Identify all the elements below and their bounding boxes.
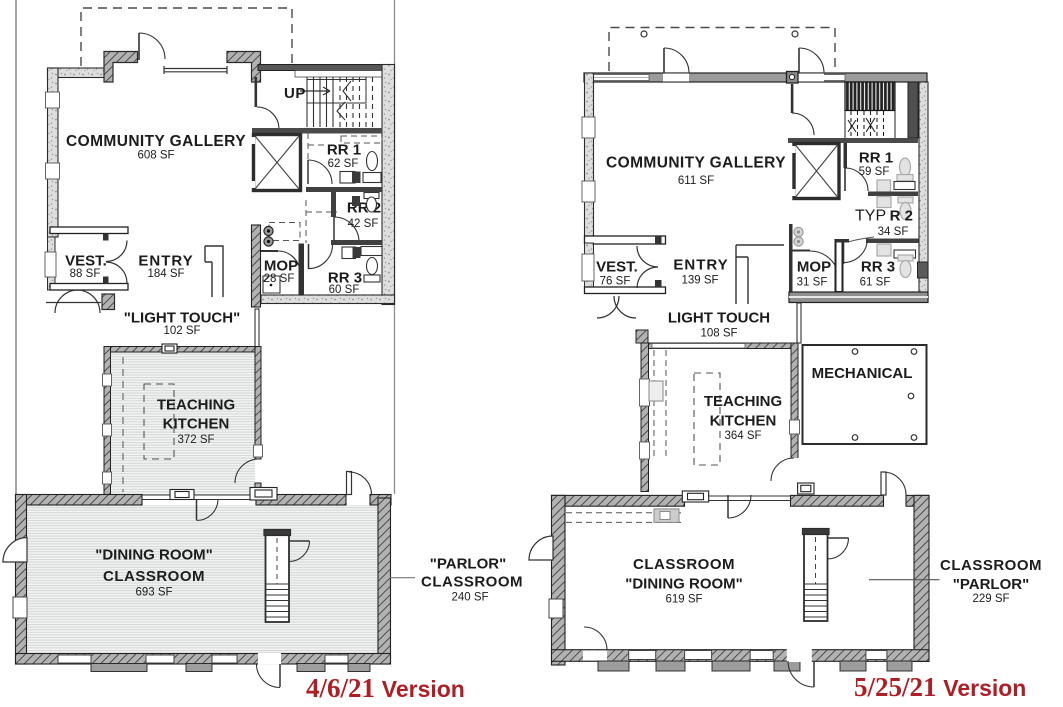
svg-text:CLASSROOM: CLASSROOM — [633, 556, 735, 573]
svg-text:608 SF: 608 SF — [137, 150, 174, 162]
svg-text:693 SF: 693 SF — [135, 587, 172, 599]
svg-text:102 SF: 102 SF — [163, 325, 200, 337]
svg-text:88 SF: 88 SF — [70, 268, 101, 280]
svg-text:COMMUNITY GALLERY: COMMUNITY GALLERY — [66, 133, 246, 150]
svg-text:VEST.: VEST. — [65, 253, 107, 270]
svg-text:5/25/21 Version: 5/25/21 Version — [854, 672, 1026, 702]
svg-text:MOP: MOP — [264, 258, 298, 275]
svg-text:139 SF: 139 SF — [681, 275, 718, 287]
svg-text:CLASSROOM: CLASSROOM — [940, 557, 1042, 574]
svg-text:108 SF: 108 SF — [700, 328, 737, 340]
svg-text:"LIGHT TOUCH": "LIGHT TOUCH" — [124, 310, 240, 327]
svg-text:CLASSROOM: CLASSROOM — [421, 574, 523, 591]
svg-text:ENTRY: ENTRY — [138, 253, 193, 270]
svg-text:MOP: MOP — [797, 259, 831, 276]
svg-text:42 SF: 42 SF — [348, 218, 379, 230]
svg-text:372 SF: 372 SF — [177, 434, 214, 446]
svg-text:28 SF: 28 SF — [264, 273, 295, 285]
svg-text:"DINING ROOM": "DINING ROOM" — [95, 547, 213, 564]
svg-text:RR 1: RR 1 — [859, 150, 893, 167]
svg-text:364 SF: 364 SF — [724, 430, 761, 442]
svg-text:61 SF: 61 SF — [860, 277, 891, 289]
svg-text:31 SF: 31 SF — [797, 277, 828, 289]
svg-text:"PARLOR": "PARLOR" — [430, 556, 506, 573]
svg-text:MECHANICAL: MECHANICAL — [812, 365, 913, 382]
svg-text:611 SF: 611 SF — [678, 175, 714, 187]
svg-text:LIGHT TOUCH: LIGHT TOUCH — [668, 310, 770, 327]
svg-text:229 SF: 229 SF — [972, 593, 1009, 605]
svg-text:COMMUNITY GALLERY: COMMUNITY GALLERY — [606, 155, 786, 172]
svg-text:KITCHEN: KITCHEN — [710, 413, 777, 430]
svg-text:76 SF: 76 SF — [600, 276, 631, 288]
svg-text:TYPR 2: TYPR 2 — [855, 208, 913, 225]
svg-text:62 SF: 62 SF — [328, 158, 359, 170]
svg-text:KITCHEN: KITCHEN — [163, 416, 230, 433]
svg-text:RR 1: RR 1 — [327, 142, 361, 159]
svg-text:CLASSROOM: CLASSROOM — [103, 568, 205, 585]
svg-text:4/6/21 Version: 4/6/21 Version — [306, 673, 465, 703]
svg-text:34 SF: 34 SF — [878, 226, 909, 238]
svg-text:60 SF: 60 SF — [329, 284, 360, 296]
svg-text:ENTRY: ENTRY — [673, 257, 728, 274]
svg-text:TEACHING: TEACHING — [704, 393, 782, 410]
svg-text:VEST.: VEST. — [596, 259, 638, 276]
svg-text:59 SF: 59 SF — [859, 166, 890, 178]
svg-text:"PARLOR": "PARLOR" — [953, 576, 1029, 593]
svg-text:TEACHING: TEACHING — [157, 397, 235, 414]
svg-text:UP: UP — [284, 85, 306, 102]
svg-text:184 SF: 184 SF — [147, 268, 184, 280]
svg-text:"DINING ROOM": "DINING ROOM" — [625, 576, 743, 593]
svg-text:619 SF: 619 SF — [665, 594, 702, 606]
svg-text:240 SF: 240 SF — [451, 592, 488, 604]
svg-text:RR 3: RR 3 — [861, 259, 895, 276]
